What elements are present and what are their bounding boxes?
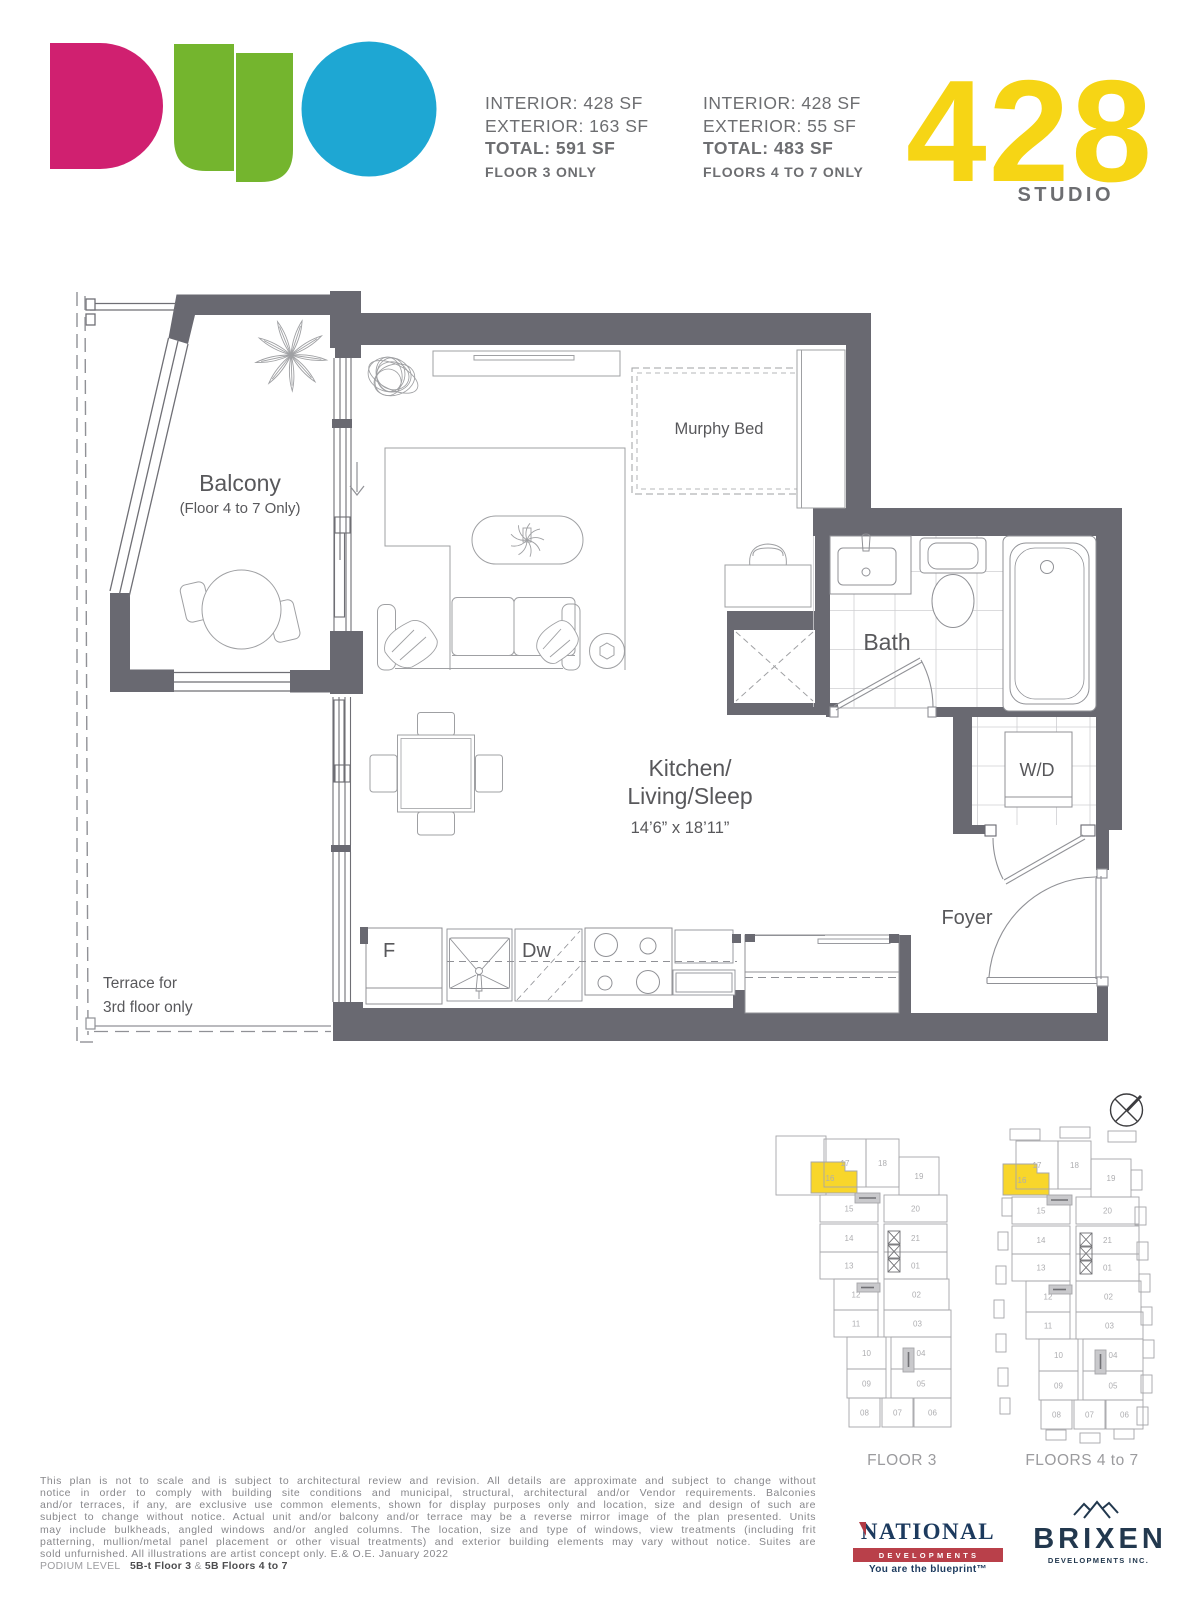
svg-text:Balcony: Balcony [199,470,281,496]
svg-text:11: 11 [1044,1322,1053,1331]
svg-text:Bath: Bath [863,629,910,655]
svg-text:W/D: W/D [1020,760,1055,780]
svg-text:12: 12 [1044,1293,1053,1302]
svg-text:06: 06 [1120,1411,1129,1420]
svg-text:Kitchen/: Kitchen/ [648,755,732,781]
svg-text:03: 03 [913,1320,922,1329]
svg-text:10: 10 [1054,1351,1063,1360]
svg-text:Murphy Bed: Murphy Bed [675,420,764,438]
svg-text:01: 01 [1103,1264,1112,1273]
svg-text:15: 15 [845,1205,854,1214]
svg-text:Terrace for: Terrace for [103,975,177,992]
svg-text:19: 19 [1107,1174,1116,1183]
svg-text:17: 17 [1033,1161,1042,1170]
svg-text:21: 21 [911,1234,920,1243]
svg-text:05: 05 [917,1380,926,1389]
svg-text:21: 21 [1103,1236,1112,1245]
svg-text:08: 08 [1052,1411,1061,1420]
svg-text:14: 14 [845,1234,854,1243]
svg-text:19: 19 [915,1172,924,1181]
svg-text:09: 09 [862,1380,871,1389]
svg-text:03: 03 [1105,1322,1114,1331]
svg-text:17: 17 [841,1159,850,1168]
svg-text:13: 13 [845,1262,854,1271]
svg-text:10: 10 [862,1349,871,1358]
svg-text:16: 16 [1018,1176,1027,1185]
svg-text:20: 20 [1103,1207,1112,1216]
svg-text:09: 09 [1054,1382,1063,1391]
svg-text:F: F [383,940,395,962]
svg-text:Living/Sleep: Living/Sleep [627,783,752,809]
svg-text:18: 18 [878,1159,887,1168]
svg-text:Dw: Dw [522,940,551,962]
svg-text:(Floor 4 to 7 Only): (Floor 4 to 7 Only) [180,500,301,517]
svg-text:15: 15 [1037,1207,1046,1216]
svg-text:06: 06 [928,1409,937,1418]
svg-text:12: 12 [852,1291,861,1300]
svg-text:FLOORS 4 to 7: FLOORS 4 to 7 [1025,1452,1138,1469]
svg-text:05: 05 [1109,1382,1118,1391]
svg-text:16: 16 [826,1174,835,1183]
svg-text:01: 01 [911,1262,920,1271]
svg-text:FLOOR 3: FLOOR 3 [867,1452,937,1469]
svg-text:02: 02 [1104,1293,1113,1302]
svg-text:13: 13 [1037,1264,1046,1273]
svg-text:04: 04 [1109,1351,1118,1360]
svg-text:Foyer: Foyer [941,907,992,929]
svg-text:04: 04 [917,1349,926,1358]
svg-text:3rd floor only: 3rd floor only [103,999,193,1016]
svg-text:08: 08 [860,1409,869,1418]
svg-text:18: 18 [1070,1161,1079,1170]
svg-text:20: 20 [911,1205,920,1214]
svg-text:07: 07 [893,1409,902,1418]
svg-text:02: 02 [912,1291,921,1300]
svg-text:14’6” x 18’11”: 14’6” x 18’11” [631,819,730,837]
svg-text:11: 11 [852,1320,861,1329]
svg-text:14: 14 [1037,1236,1046,1245]
svg-text:07: 07 [1085,1411,1094,1420]
